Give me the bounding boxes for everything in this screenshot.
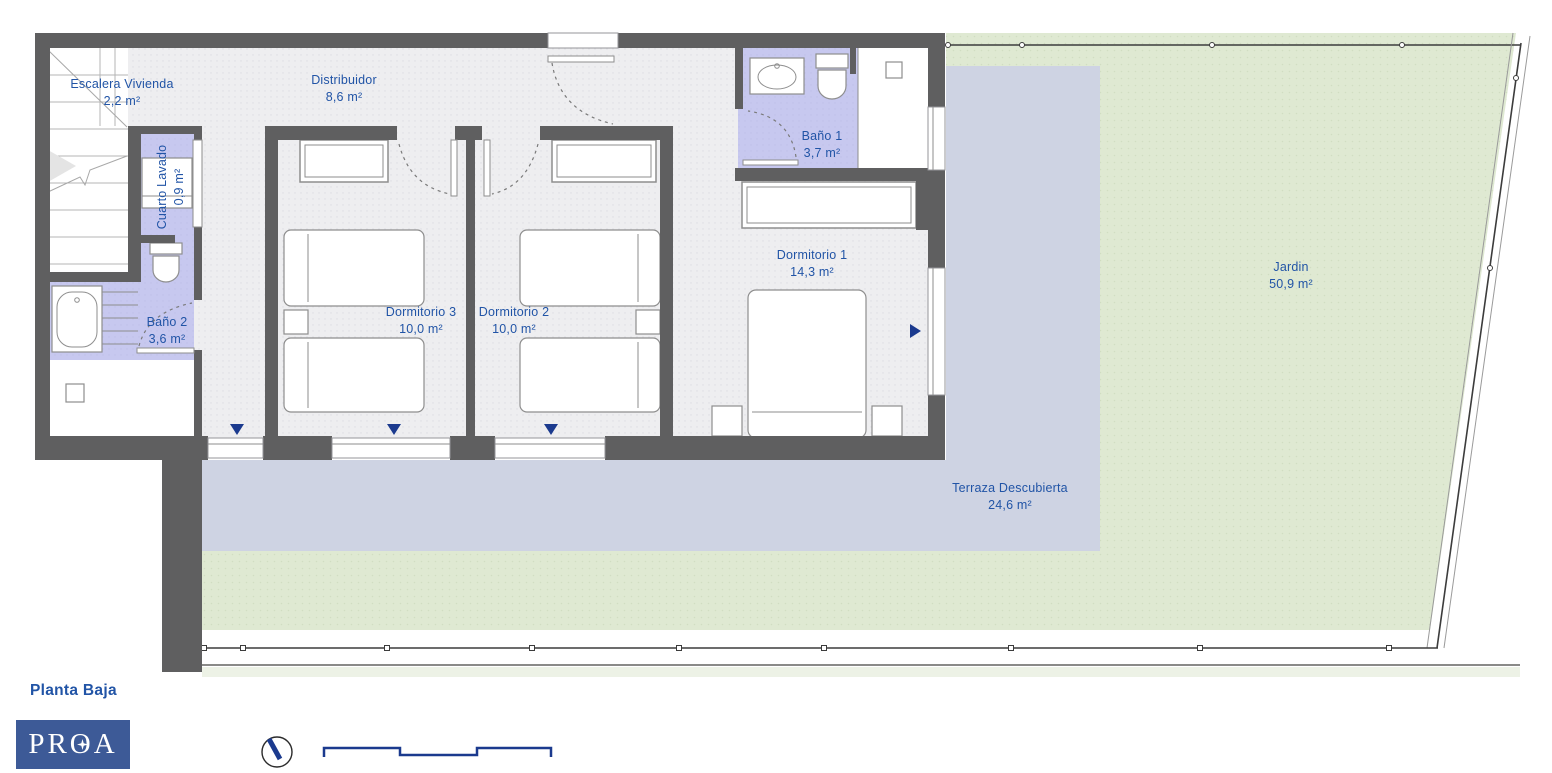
room-area: 3,6 m² (147, 331, 188, 348)
room-area: 8,6 m² (311, 89, 377, 106)
room-label-bano-1: Baño 1 3,7 m² (802, 128, 843, 162)
room-area: 14,3 m² (777, 264, 847, 281)
boiler-icon (886, 62, 902, 78)
room-name: Cuarto Lavado (154, 145, 171, 230)
room-area: 10,0 m² (386, 321, 456, 338)
bed-dorm1 (748, 290, 866, 438)
room-area: 24,6 m² (952, 497, 1068, 514)
room-area: 2,2 m² (70, 93, 173, 110)
room-label-dormitorio-1: Dormitorio 1 14,3 m² (777, 247, 847, 281)
room-label-terraza: Terraza Descubierta 24,6 m² (952, 480, 1068, 514)
wardrobe-dorm1 (742, 182, 916, 228)
room-name: Jardin (1269, 259, 1313, 276)
room-name: Baño 1 (802, 128, 843, 145)
room-label-dormitorio-2: Dormitorio 2 10,0 m² (479, 304, 549, 338)
room-label-cuarto-lavado: Cuarto Lavado 0,9 m² (154, 145, 188, 230)
room-area: 50,9 m² (1269, 276, 1313, 293)
bed-dorm2-b (520, 338, 660, 412)
boundary-wall (162, 460, 202, 672)
door-laundry (193, 140, 202, 227)
compass-star-icon (77, 739, 88, 750)
room-label-distribuidor: Distribuidor 8,6 m² (311, 72, 377, 106)
porch-box-icon (66, 384, 84, 402)
bed-dorm3-a (284, 230, 424, 306)
toilet-icon (816, 54, 848, 99)
room-label-jardin: Jardin 50,9 m² (1269, 259, 1313, 293)
proa-logo: PROA (16, 720, 130, 769)
room-name: Escalera Vivienda (70, 76, 173, 93)
room-name: Dormitorio 3 (386, 304, 456, 321)
room-area: 3,7 m² (802, 145, 843, 162)
room-name: Dormitorio 1 (777, 247, 847, 264)
wardrobe-dorm3 (300, 140, 388, 182)
nightstand-dorm2 (636, 310, 660, 334)
wardrobe-dorm2 (552, 140, 656, 182)
bed-dorm3-b (284, 338, 424, 412)
room-name: Distribuidor (311, 72, 377, 89)
room-name: Baño 2 (147, 314, 188, 331)
nightstand-dorm1-right (872, 406, 902, 436)
room-area: 10,0 m² (479, 321, 549, 338)
proa-logo-text: PROA (28, 730, 117, 759)
scale-bar (324, 748, 551, 757)
room-area: 0,9 m² (171, 145, 188, 230)
floor-plan-drawing (0, 0, 1552, 773)
bed-dorm2-a (520, 230, 660, 306)
room-name: Dormitorio 2 (479, 304, 549, 321)
north-compass-icon (262, 737, 292, 767)
sink-icon (750, 58, 804, 94)
floor-plan-page: Escalera Vivienda 2,2 m² Cuarto Lavado 0… (0, 0, 1552, 773)
nightstand-dorm3 (284, 310, 308, 334)
plan-title: Planta Baja (30, 682, 117, 700)
toilet2-icon (150, 243, 182, 282)
nightstand-dorm1-left (712, 406, 742, 436)
room-label-bano-2: Baño 2 3,6 m² (147, 314, 188, 348)
room-label-dormitorio-3: Dormitorio 3 10,0 m² (386, 304, 456, 338)
room-label-escalera-vivienda: Escalera Vivienda 2,2 m² (70, 76, 173, 110)
room-name: Terraza Descubierta (952, 480, 1068, 497)
